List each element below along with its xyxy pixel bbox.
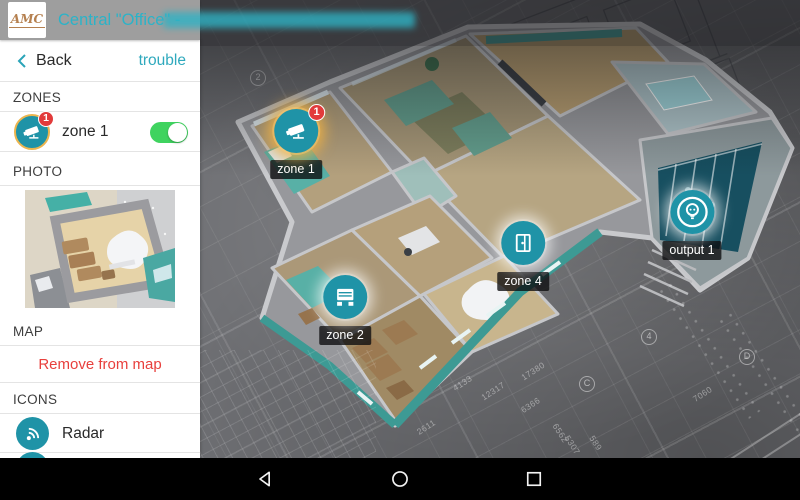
- door-contact-icon: [510, 230, 536, 256]
- zone-name-label: zone 1: [62, 112, 109, 152]
- map-header-label: MAP: [13, 324, 43, 339]
- zone-2-marker-button[interactable]: [323, 275, 367, 319]
- output-1-marker-button[interactable]: [670, 190, 714, 234]
- radar-icon: [16, 417, 49, 450]
- map-marker-zone-2: zone 2: [319, 275, 371, 345]
- cctv-camera-icon: [283, 118, 309, 144]
- map-marker-zone-4: zone 4: [497, 221, 549, 291]
- map-section-header: MAP: [0, 313, 200, 346]
- blueprint-grid-ref: 4: [641, 329, 657, 345]
- app-screen: 4133 12317 17380 6366 6562 5307 2611 706…: [0, 0, 800, 500]
- amc-logo-text: AMC: [9, 12, 45, 28]
- nav-back-icon: [255, 469, 275, 489]
- nav-home-button[interactable]: [384, 467, 416, 491]
- zone-4-marker-button[interactable]: [501, 221, 545, 265]
- back-label: Back: [36, 40, 72, 82]
- blueprint-grid-ref: C: [579, 376, 595, 392]
- map-marker-zone-1: 1 zone 1: [270, 109, 322, 179]
- nav-recents-icon: [524, 469, 544, 489]
- toggle-knob: [168, 123, 187, 142]
- marker-label: zone 2: [319, 326, 371, 345]
- icons-section-header: ICONS: [0, 383, 200, 414]
- photo-header-label: PHOTO: [13, 164, 62, 179]
- zone-1-marker-button[interactable]: 1: [274, 109, 318, 153]
- marker-label: zone 1: [270, 160, 322, 179]
- photo-section-header: PHOTO: [0, 152, 200, 186]
- remove-from-map-button[interactable]: Remove from map: [0, 346, 200, 383]
- zone-1-row[interactable]: 1 zone 1: [0, 112, 200, 152]
- redacted-central-id: [163, 12, 415, 28]
- marker-label: zone 4: [497, 272, 549, 291]
- zone-photo-thumbnail[interactable]: [0, 186, 200, 310]
- remove-from-map-label: Remove from map: [38, 356, 161, 373]
- amc-logo: AMC: [8, 2, 46, 38]
- marker-label: output 1: [662, 241, 721, 260]
- zone-enabled-toggle[interactable]: [150, 122, 188, 143]
- nav-back-button[interactable]: [249, 467, 281, 491]
- zones-header-label: ZONES: [13, 90, 61, 105]
- settings-panel: Back trouble ZONES 1 zone 1: [0, 40, 200, 458]
- top-bar: AMC Central "Office" -: [0, 0, 800, 40]
- alarm-count-badge: 1: [38, 111, 54, 127]
- map-marker-output-1: output 1: [662, 190, 721, 260]
- icons-header-label: ICONS: [13, 392, 57, 407]
- zone-photo-render: [25, 190, 175, 308]
- alarm-count-badge: 1: [308, 104, 325, 121]
- blueprint-paving-grid: [186, 350, 376, 458]
- nav-recents-button[interactable]: [518, 467, 550, 491]
- trouble-link[interactable]: trouble: [139, 40, 186, 82]
- icon-option-label: Radar: [62, 414, 104, 453]
- android-nav-bar: [0, 458, 800, 500]
- nav-home-icon: [390, 469, 410, 489]
- zones-section-header: ZONES: [0, 82, 200, 112]
- icon-option-radar[interactable]: Radar: [0, 414, 200, 453]
- cctv-camera-icon: 1: [14, 114, 50, 150]
- back-button[interactable]: Back trouble: [0, 40, 200, 82]
- roller-shutter-icon: [332, 284, 358, 310]
- light-bulb-icon: [675, 195, 709, 229]
- back-chevron-icon: [13, 51, 33, 71]
